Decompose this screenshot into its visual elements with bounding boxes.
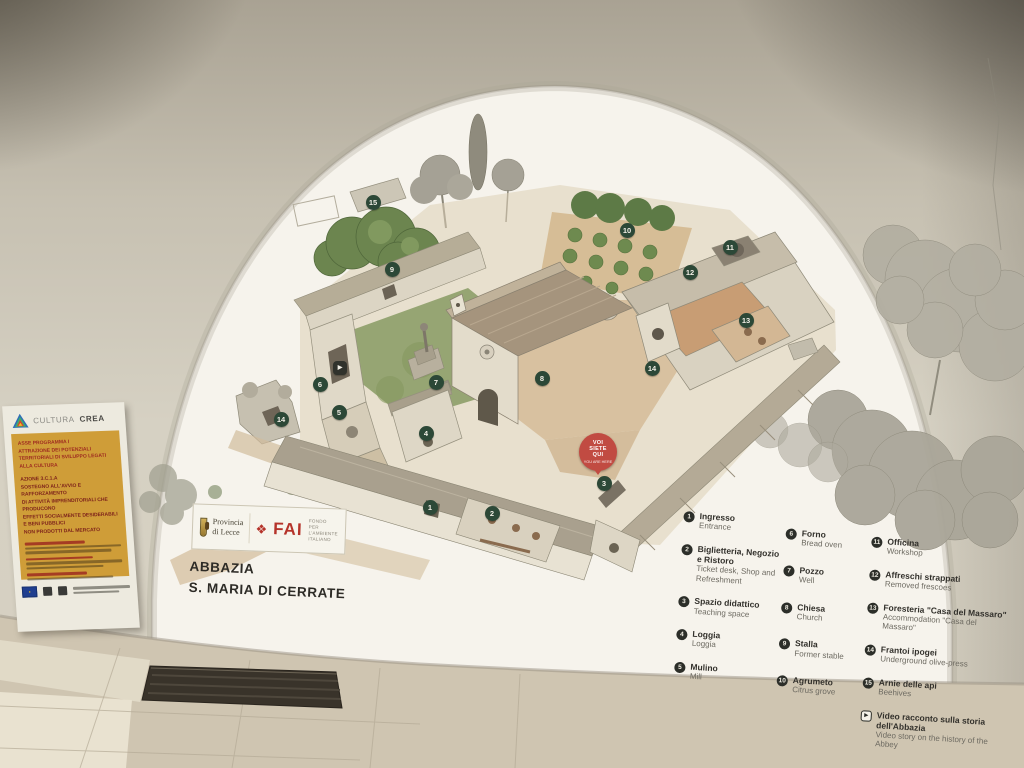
legend-label-en: Entrance [699, 521, 735, 533]
fai-logo-icon: ❖ [255, 522, 267, 535]
map-marker-11: 11 [723, 240, 738, 255]
poster-brand-light: CULTURA [33, 414, 75, 424]
legend-item: 3Spazio didatticoTeaching space [678, 595, 779, 621]
legend-item: 14Frantoi ipogeiUnderground olive-press [864, 643, 1007, 671]
legend-label-en: Church [796, 612, 824, 623]
legend-number-badge: 14 [864, 644, 876, 656]
legend-column-2: 6FornoBread oven7PozzoWell8ChiesaChurch9… [775, 527, 874, 716]
illegible-text-line [25, 549, 112, 555]
illegible-text-line [73, 585, 130, 589]
fai-subtitle: FONDO PER L'AMBIENTE ITALIANO [308, 518, 338, 543]
wall-crack [988, 58, 1001, 250]
map-marker-13: 13 [739, 313, 754, 328]
legend-label-en: Mill [690, 672, 718, 683]
map-marker-12: 12 [683, 265, 698, 280]
poster-heading-2: AZIONE 3.C.1.ASOSTEGNO ALL'AVVIO E RAFFO… [20, 473, 120, 536]
map-marker-6: 6 [313, 377, 328, 392]
legend-item: 6FornoBread oven [785, 527, 874, 552]
map-marker-7: 7 [429, 375, 444, 390]
legend-column-1: 1IngressoEntrance2Biglietteria, Negozio … [673, 510, 784, 699]
legend-number-badge: 6 [785, 528, 797, 540]
legend-item: 8ChiesaChurch [780, 601, 869, 626]
legend-item: 7PozzoWell [783, 564, 872, 589]
legend-number-badge: 11 [871, 537, 883, 549]
legend-number-badge: 8 [781, 602, 793, 614]
cultura-crea-logo-icon [12, 414, 29, 429]
map-marker-14: 14 [645, 361, 660, 376]
map-marker-5: 5 [332, 405, 347, 420]
you-are-here-subtext: YOU ARE HERE [579, 460, 617, 464]
map-marker-15: 15 [366, 195, 381, 210]
illegible-text-line [27, 571, 87, 576]
you-are-here-pin: VOI SIETE QUI YOU ARE HERE [579, 433, 617, 471]
map-marker-4: 4 [419, 426, 434, 441]
institution-logos-box: Provincia di Lecce ❖ FAI FONDO PER L'AMB… [191, 503, 347, 554]
legend-number-badge: 1 [683, 511, 695, 523]
legend-label-en: Loggia [692, 639, 720, 650]
legend-item: 2Biglietteria, Negozio e RistoroTicket d… [680, 543, 782, 589]
legend-number-badge: 3 [678, 596, 690, 608]
legend-label-en: Well [799, 575, 824, 586]
legend-number-badge: 5 [674, 662, 686, 674]
map-video-icon: ▶ [333, 361, 347, 375]
cultura-crea-poster: CULTURACREA ASSE PROGRAMMA IATTRAZIONE D… [2, 402, 140, 632]
legend-number-badge: 15 [862, 677, 874, 689]
illegible-text-line [27, 575, 114, 581]
poster-heading-1: ASSE PROGRAMMA IATTRAZIONE DEI POTENZIAL… [18, 438, 116, 471]
legend-item: 13Foresteria "Casa del Massaro"Accommoda… [866, 601, 1010, 639]
legend-column-3: 11OfficinaWorkshop12Affreschi strappatiR… [858, 536, 1014, 768]
map-marker-2: 2 [485, 506, 500, 521]
legend-label-en: Bread oven [801, 538, 842, 550]
legend-number-badge: 12 [869, 569, 881, 581]
legend-number-badge: 10 [776, 675, 788, 687]
map-marker-14: 14 [274, 412, 289, 427]
legend-number-badge: 2 [681, 544, 693, 556]
photo-of-abbey-map-wall: CULTURACREA ASSE PROGRAMMA IATTRAZIONE D… [0, 0, 1024, 768]
legend-item: 15Arnie delle apiBeehives [862, 676, 1005, 704]
legend-item: 10AgrumetoCitrus grove [776, 674, 865, 699]
legend-item: 9StallaFormer stable [778, 637, 867, 662]
partner-logo-icon [58, 586, 68, 595]
legend-label-en: Citrus grove [792, 685, 836, 697]
map-marker-1: 1 [423, 500, 438, 515]
you-are-here-text: QUI [579, 452, 617, 458]
legend-item: 12Affreschi strappatiRemoved frescoes [869, 568, 1012, 596]
legend-number-badge: 13 [867, 602, 879, 614]
map-marker-10: 10 [620, 223, 635, 238]
legend-number-badge: 4 [676, 629, 688, 641]
fai-acronym: FAI [273, 519, 303, 540]
illegible-text-line [25, 541, 85, 546]
illegible-text-line [73, 590, 119, 594]
illegible-text-line [26, 559, 122, 565]
floor-grate [142, 666, 342, 708]
poster-brand-bold: CREA [79, 413, 105, 423]
eu-flag-icon [22, 586, 38, 597]
legend-label-en: Former stable [794, 649, 844, 662]
provincia-di-lecce-shield-icon [200, 517, 207, 536]
poster-yellow-panel: ASSE PROGRAMMA IATTRAZIONE DEI POTENZIAL… [11, 430, 129, 579]
legend-item: ▶Video racconto sulla storia dell'Abbazi… [859, 709, 1003, 757]
legend-label-en: Ticket desk, Shop and Refreshment [696, 564, 781, 588]
provincia-di-lecce-label: Provincia di Lecce [212, 517, 243, 537]
legend-number-badge: 9 [779, 638, 791, 650]
partner-logo-icon [43, 587, 53, 596]
abbey-title: ABBAZIA S. MARIA DI CERRATE [188, 557, 347, 605]
divider [249, 513, 250, 543]
illegible-text-line [26, 564, 103, 569]
video-icon: ▶ [860, 710, 872, 722]
map-marker-8: 8 [535, 371, 550, 386]
legend-item: 5MulinoMill [674, 661, 775, 687]
map-marker-9: 9 [385, 262, 400, 277]
legend-item: 4LoggiaLoggia [676, 628, 777, 654]
legend-label-en: Workshop [887, 547, 923, 559]
legend-number-badge: 7 [783, 565, 795, 577]
